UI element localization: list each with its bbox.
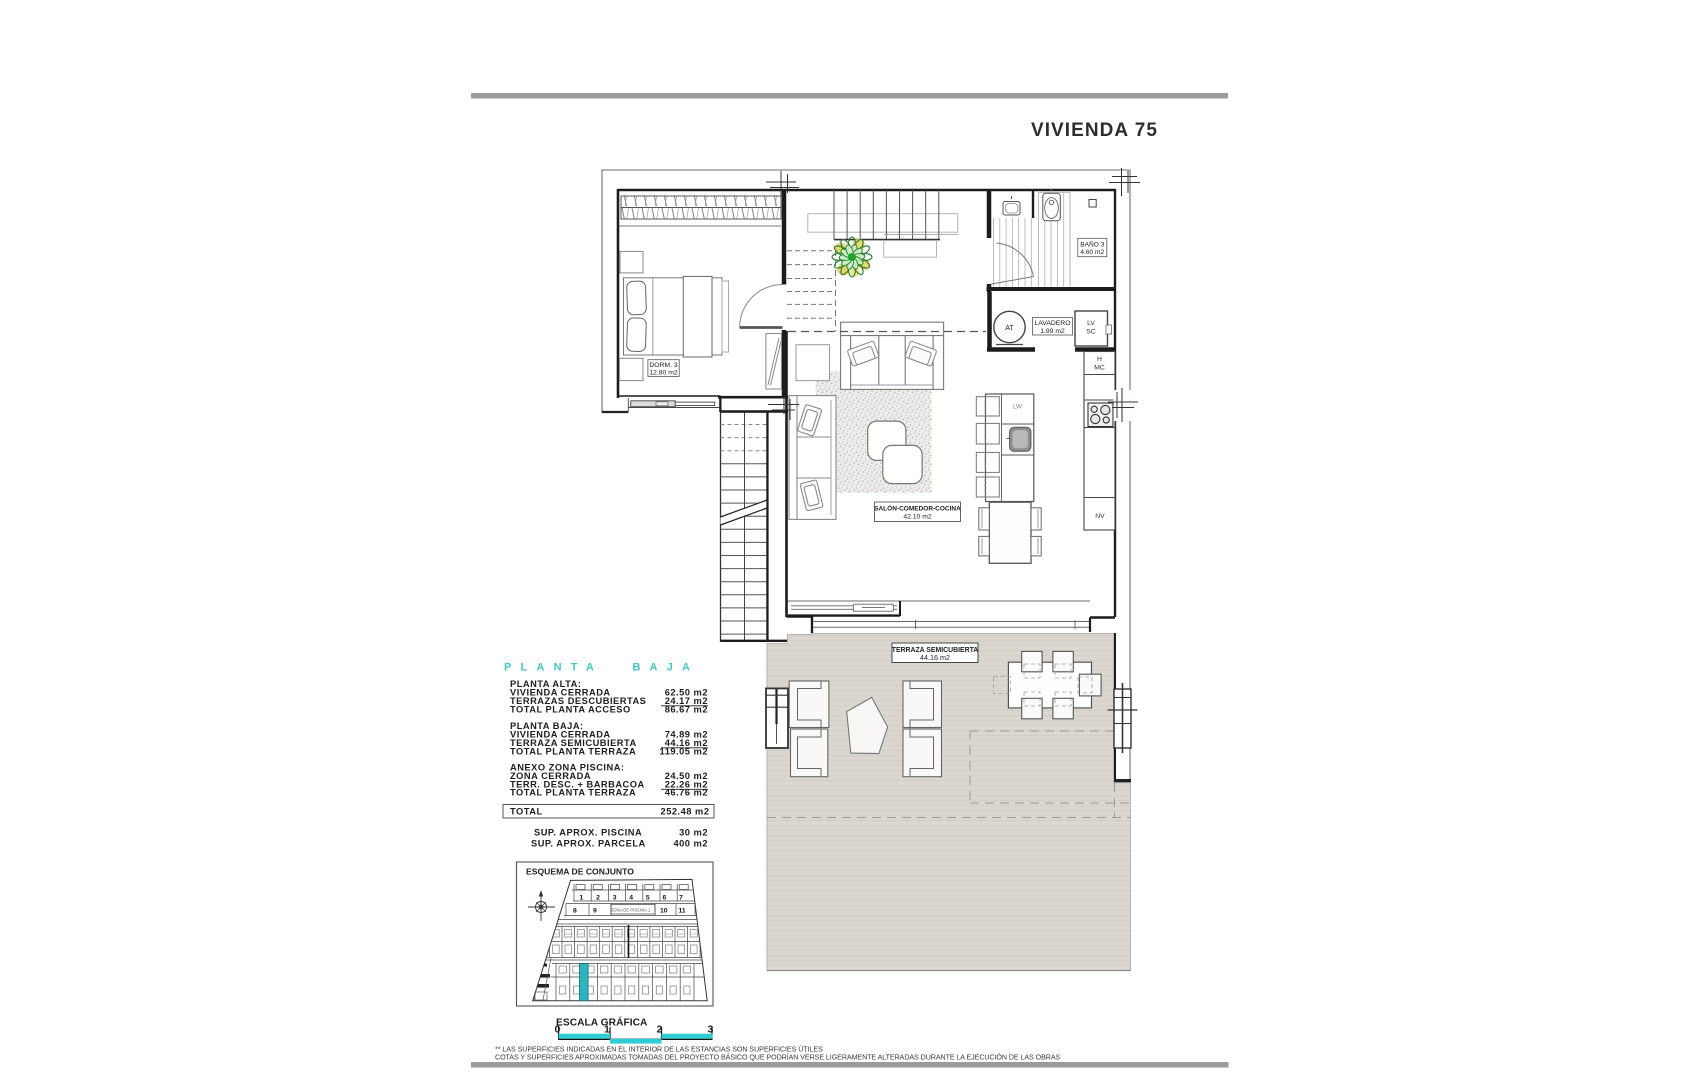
svg-text:2: 2 bbox=[596, 895, 600, 902]
svg-text:4: 4 bbox=[629, 895, 633, 902]
svg-text:11: 11 bbox=[679, 908, 686, 915]
svg-text:TOTAL PLANTA ACCESO: TOTAL PLANTA ACCESO bbox=[510, 705, 631, 715]
svg-text:1: 1 bbox=[580, 895, 584, 902]
svg-text:252.48 m2: 252.48 m2 bbox=[661, 806, 710, 816]
svg-text:SALÓN-COMEDOR-COCINA: SALÓN-COMEDOR-COCINA bbox=[874, 504, 961, 513]
svg-text:30 m2: 30 m2 bbox=[679, 828, 708, 838]
svg-text:42.10 m2: 42.10 m2 bbox=[903, 514, 932, 521]
svg-text:ESQUEMA DE CONJUNTO: ESQUEMA DE CONJUNTO bbox=[526, 867, 634, 877]
svg-text:ESCALA GRÁFICA: ESCALA GRÁFICA bbox=[556, 1016, 648, 1029]
svg-text:10: 10 bbox=[660, 908, 668, 915]
svg-text:H: H bbox=[1097, 356, 1102, 363]
svg-text:8: 8 bbox=[573, 908, 577, 915]
svg-text:LV: LV bbox=[1087, 320, 1095, 327]
svg-text:400 m2: 400 m2 bbox=[673, 838, 708, 848]
svg-text:BAÑO 3: BAÑO 3 bbox=[1080, 239, 1105, 248]
svg-text:DORM. 3: DORM. 3 bbox=[649, 362, 678, 369]
svg-text:** LAS SUPERFICIES INDICADAS E: ** LAS SUPERFICIES INDICADAS EN EL INTER… bbox=[495, 1045, 823, 1054]
svg-text:SUP. APROX. PISCINA: SUP. APROX. PISCINA bbox=[534, 828, 642, 838]
svg-text:5: 5 bbox=[646, 895, 650, 902]
svg-text:SUP. APROX. PARCELA: SUP. APROX. PARCELA bbox=[531, 838, 646, 848]
svg-text:3: 3 bbox=[613, 895, 617, 902]
svg-text:1.99 m2: 1.99 m2 bbox=[1040, 328, 1065, 335]
svg-text:7: 7 bbox=[679, 895, 683, 902]
svg-text:NV: NV bbox=[1095, 513, 1105, 520]
svg-text:AT: AT bbox=[1005, 325, 1014, 332]
svg-text:6: 6 bbox=[663, 895, 667, 902]
svg-text:MC: MC bbox=[1094, 365, 1105, 372]
svg-text:119.05 m2: 119.05 m2 bbox=[660, 747, 708, 757]
svg-text:PLANTA BAJA: PLANTA BAJA bbox=[504, 662, 699, 674]
svg-text:ZONA DE PISCINA 1: ZONA DE PISCINA 1 bbox=[611, 908, 651, 913]
svg-text:TOTAL: TOTAL bbox=[510, 806, 543, 816]
svg-text:COTAS Y SUPERFICIES APROXIMADA: COTAS Y SUPERFICIES APROXIMADAS TOMADAS … bbox=[495, 1053, 1061, 1062]
svg-text:LW: LW bbox=[1013, 404, 1023, 411]
svg-text:12.80 m2: 12.80 m2 bbox=[649, 370, 678, 377]
svg-text:9: 9 bbox=[593, 908, 597, 915]
svg-text:SC: SC bbox=[1086, 329, 1096, 336]
svg-text:44.16 m2: 44.16 m2 bbox=[920, 653, 950, 662]
svg-text:LAVADERO: LAVADERO bbox=[1034, 320, 1070, 327]
svg-text:86.67 m2: 86.67 m2 bbox=[665, 705, 708, 715]
svg-text:VIVIENDA 75: VIVIENDA 75 bbox=[1031, 120, 1158, 141]
svg-text:4.60 m2: 4.60 m2 bbox=[1080, 249, 1104, 256]
svg-text:46.76 m2: 46.76 m2 bbox=[665, 788, 708, 798]
svg-text:TOTAL PLANTA TERRAZA: TOTAL PLANTA TERRAZA bbox=[510, 788, 636, 798]
svg-text:TOTAL PLANTA TERRAZA: TOTAL PLANTA TERRAZA bbox=[510, 747, 636, 757]
